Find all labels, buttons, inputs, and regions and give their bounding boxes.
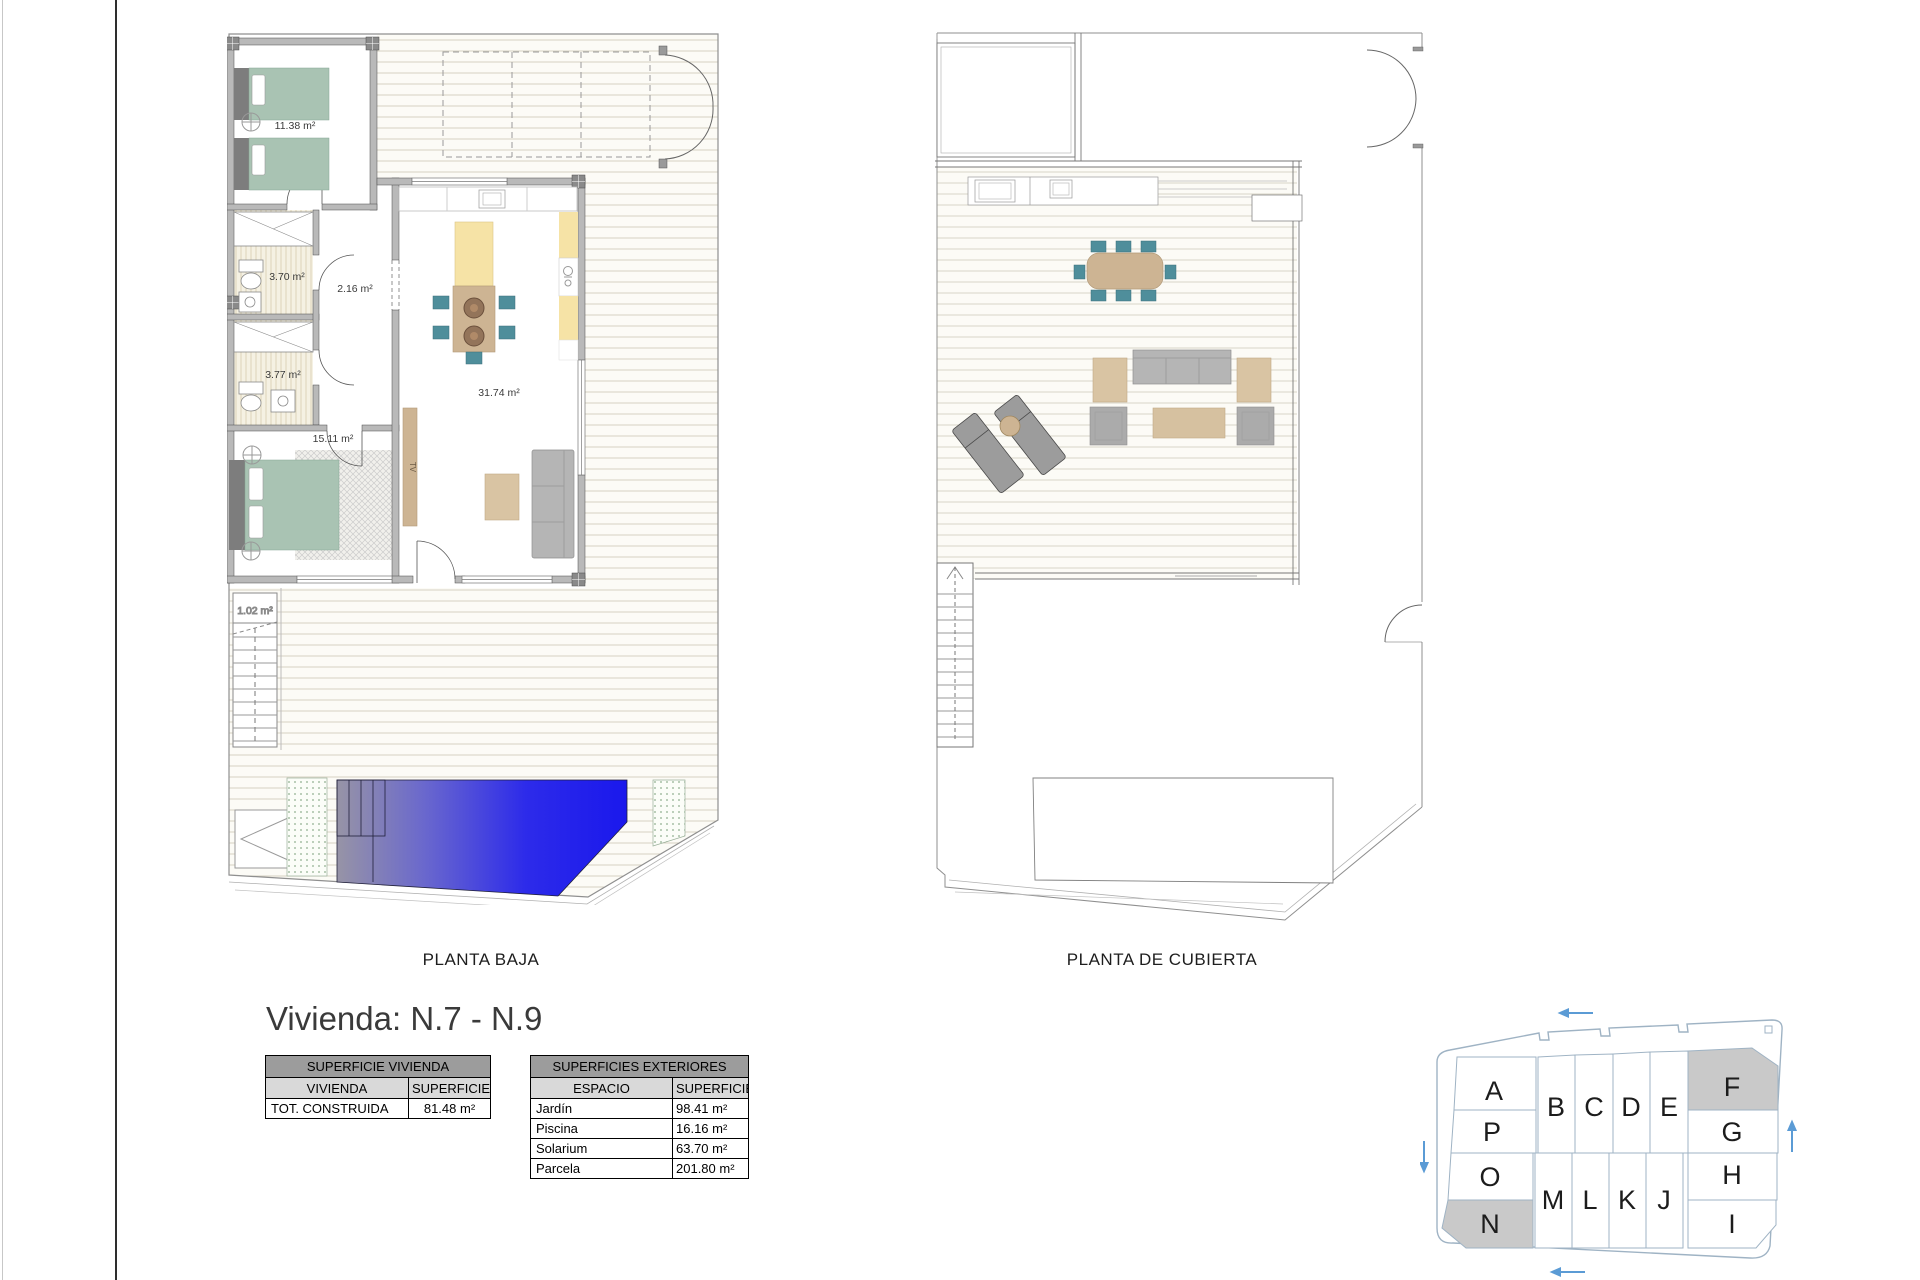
garden-hedge-left [287, 778, 327, 876]
plot-label-F: F [1724, 1072, 1741, 1102]
sofa [532, 450, 574, 558]
plot-label-L: L [1582, 1185, 1597, 1215]
site-plan-key: A P O N B C D E M L K J F G H I [1420, 1000, 1820, 1280]
bathroom2-area-label: 3.77 m² [265, 369, 301, 381]
stair-volume [937, 33, 1081, 161]
sheet-left-edge [2, 0, 3, 1280]
garden-hedge-right [653, 780, 685, 846]
roof-plan-caption: PLANTA DE CUBIERTA [1012, 950, 1312, 970]
plot-label-I: I [1728, 1209, 1736, 1239]
coffee-table [485, 474, 519, 520]
plot-label-C: C [1584, 1092, 1604, 1122]
storage-area-label: 1.02 m² [237, 605, 273, 617]
roof-plan [935, 30, 1425, 925]
row-solarium-value: 63.70 m² [673, 1139, 749, 1159]
row-parcela-name: Parcela [531, 1159, 673, 1179]
row-parcela-value: 201.80 m² [673, 1159, 749, 1179]
solarium-outline [1033, 778, 1333, 883]
roof-stairs [937, 563, 973, 747]
row-piscina-name: Piscina [531, 1119, 673, 1139]
ceiling-light-icon [242, 113, 260, 131]
bedroom2-furniture [229, 446, 339, 560]
table-row: Piscina 16.16 m² [531, 1119, 749, 1139]
table-row: Parcela 201.80 m² [531, 1159, 749, 1179]
vivienda-col1-header: VIVIENDA [266, 1078, 409, 1099]
plot-label-G: G [1721, 1117, 1742, 1147]
exteriores-table-title: SUPERFICIES EXTERIORES [531, 1056, 749, 1078]
table-row: Jardín 98.41 m² [531, 1099, 749, 1119]
vivienda-col2-header: SUPERFICIE [409, 1078, 491, 1099]
exteriores-surface-table: SUPERFICIES EXTERIORES ESPACIO SUPERFICI… [530, 1055, 749, 1179]
plot-label-D: D [1621, 1092, 1641, 1122]
row-solarium-name: Solarium [531, 1139, 673, 1159]
exteriores-col1-header: ESPACIO [531, 1078, 673, 1099]
tv-label: TV [408, 462, 417, 473]
plot-label-M: M [1542, 1185, 1565, 1215]
bedroom1-area-label: 11.38 m² [275, 120, 316, 132]
ground-floor-plan: 1.02 m² [227, 30, 722, 905]
plot-label-P: P [1483, 1117, 1501, 1147]
sheet-divider-line [115, 0, 117, 1280]
table-row: TOT. CONSTRUIDA 81.48 m² [266, 1099, 491, 1119]
bedroom2-area-label: 15.11 m² [313, 433, 354, 445]
ground-floor-caption: PLANTA BAJA [331, 950, 631, 970]
plot-label-J: J [1657, 1185, 1671, 1215]
arrow-left-icon [1421, 1141, 1428, 1171]
living-area-label: 31.74 m² [478, 387, 520, 399]
plot-label-K: K [1618, 1185, 1636, 1215]
plot-label-N: N [1480, 1209, 1500, 1239]
sheet-title: Vivienda: N.7 - N.9 [266, 1000, 542, 1038]
arrow-bottom-icon [1552, 1269, 1585, 1276]
row-piscina-value: 16.16 m² [673, 1119, 749, 1139]
kitchen-living-furniture: TV [399, 187, 578, 558]
plan-sheet: 1.02 m² [0, 0, 1920, 1280]
plot-label-A: A [1485, 1076, 1503, 1106]
exteriores-col2-header: SUPERFICIE [673, 1078, 749, 1099]
site-detail-square [1765, 1026, 1772, 1033]
plot-label-E: E [1660, 1092, 1678, 1122]
plot-label-H: H [1722, 1160, 1742, 1190]
row-jardin-value: 98.41 m² [673, 1099, 749, 1119]
roof-doors [1367, 47, 1423, 642]
vivienda-row-name: TOT. CONSTRUIDA [266, 1099, 409, 1119]
row-jardin-name: Jardín [531, 1099, 673, 1119]
vivienda-surface-table: SUPERFICIE VIVIENDA VIVIENDA SUPERFICIE … [265, 1055, 491, 1119]
side-table [1000, 416, 1020, 436]
vivienda-table-title: SUPERFICIE VIVIENDA [266, 1056, 491, 1078]
garden-stairs: 1.02 m² [233, 588, 281, 750]
table-row: Solarium 63.70 m² [531, 1139, 749, 1159]
bathroom1-area-label: 3.70 m² [269, 271, 305, 283]
vivienda-row-value: 81.48 m² [409, 1099, 491, 1119]
hall-area-label: 2.16 m² [337, 283, 373, 295]
plot-label-B: B [1547, 1092, 1565, 1122]
arrow-right-icon [1789, 1122, 1796, 1152]
arrow-top-icon [1560, 1010, 1593, 1017]
plot-label-O: O [1479, 1162, 1500, 1192]
